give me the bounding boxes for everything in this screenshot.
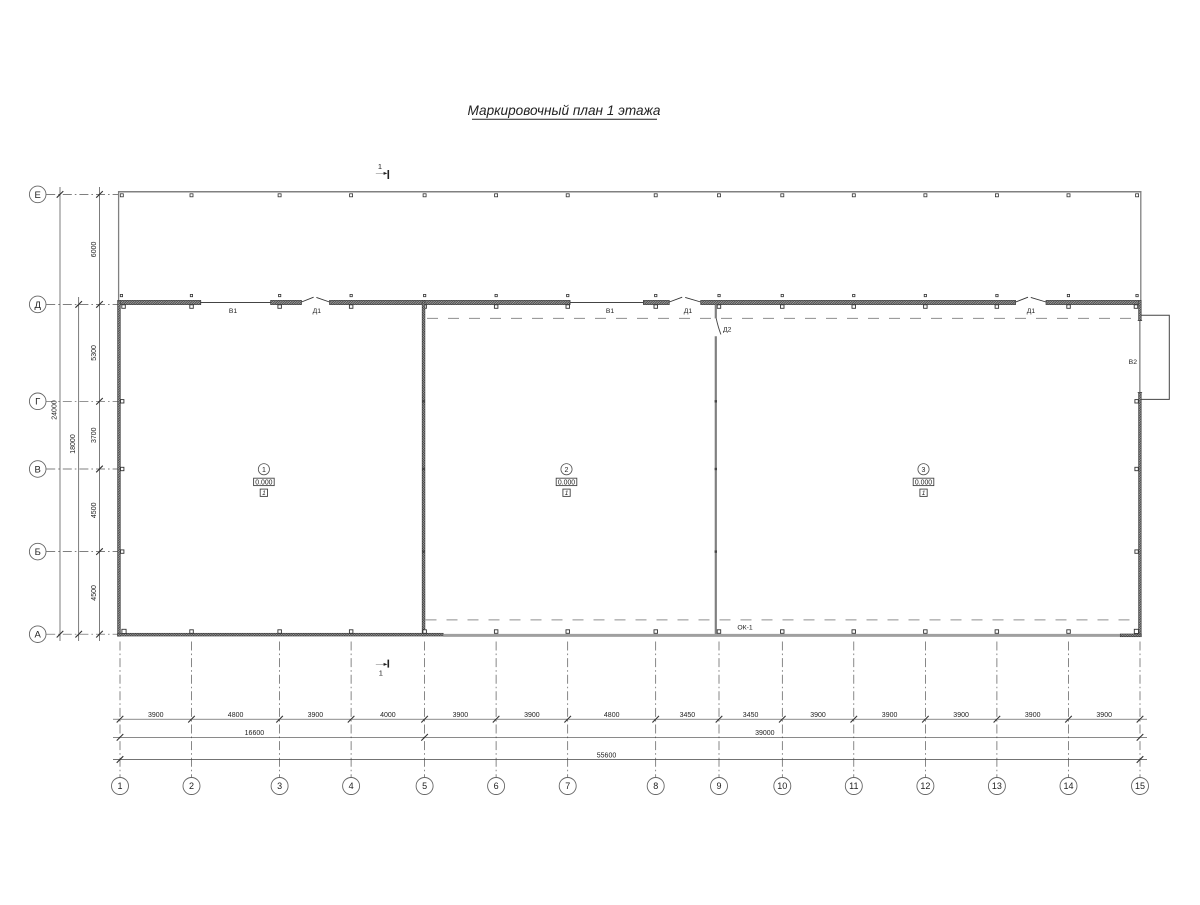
svg-text:13: 13	[992, 781, 1002, 791]
svg-text:В: В	[35, 464, 41, 475]
svg-text:6: 6	[494, 781, 499, 791]
svg-text:1: 1	[922, 490, 926, 497]
svg-text:3450: 3450	[743, 712, 759, 719]
svg-text:2: 2	[189, 781, 194, 791]
svg-text:ОК-1: ОК-1	[737, 625, 753, 632]
svg-text:0.000: 0.000	[915, 479, 932, 486]
svg-text:6000: 6000	[91, 242, 98, 258]
svg-text:10: 10	[777, 781, 787, 791]
svg-text:3: 3	[277, 781, 282, 791]
svg-text:Маркировочный план 1 этажа: Маркировочный план 1 этажа	[468, 103, 661, 118]
svg-text:12: 12	[920, 781, 930, 791]
svg-text:Д2: Д2	[723, 327, 732, 334]
svg-text:5: 5	[422, 781, 427, 791]
svg-text:Д1: Д1	[1027, 308, 1036, 315]
svg-text:3900: 3900	[453, 712, 469, 719]
svg-text:1: 1	[379, 669, 383, 678]
svg-text:3900: 3900	[524, 712, 540, 719]
svg-text:3900: 3900	[148, 712, 164, 719]
svg-text:2: 2	[565, 467, 569, 474]
svg-text:1: 1	[117, 781, 122, 791]
svg-text:Г: Г	[35, 397, 40, 408]
svg-text:4000: 4000	[380, 712, 396, 719]
svg-text:Е: Е	[35, 190, 41, 201]
svg-text:4800: 4800	[228, 712, 244, 719]
svg-text:3900: 3900	[882, 712, 898, 719]
svg-text:5300: 5300	[91, 345, 98, 361]
svg-text:А: А	[35, 630, 42, 641]
svg-text:1: 1	[262, 490, 266, 497]
svg-text:0.000: 0.000	[255, 479, 272, 486]
svg-text:3900: 3900	[308, 712, 324, 719]
svg-text:3700: 3700	[91, 427, 98, 443]
svg-text:9: 9	[716, 781, 721, 791]
svg-text:15: 15	[1135, 781, 1145, 791]
svg-text:3900: 3900	[953, 712, 969, 719]
svg-text:3900: 3900	[1025, 712, 1041, 719]
svg-text:0.000: 0.000	[558, 479, 575, 486]
svg-text:24000: 24000	[52, 400, 59, 420]
svg-text:3900: 3900	[810, 712, 826, 719]
svg-text:3450: 3450	[680, 712, 696, 719]
svg-text:Д: Д	[34, 300, 41, 311]
svg-text:Д1: Д1	[313, 308, 322, 315]
svg-text:1: 1	[565, 490, 569, 497]
svg-text:4500: 4500	[91, 585, 98, 601]
svg-text:Д1: Д1	[684, 308, 693, 315]
svg-text:4: 4	[349, 781, 354, 791]
svg-text:8: 8	[653, 781, 658, 791]
svg-text:Б: Б	[35, 547, 41, 558]
svg-text:14: 14	[1063, 781, 1073, 791]
svg-text:1: 1	[378, 162, 382, 171]
svg-text:18000: 18000	[70, 434, 77, 454]
svg-text:В1: В1	[229, 308, 238, 315]
svg-text:3900: 3900	[1096, 712, 1112, 719]
svg-text:1: 1	[262, 467, 266, 474]
svg-text:В1: В1	[606, 308, 615, 315]
svg-text:4500: 4500	[91, 502, 98, 518]
svg-text:3: 3	[922, 467, 926, 474]
svg-text:39000: 39000	[755, 730, 775, 737]
svg-text:55600: 55600	[597, 752, 617, 759]
svg-text:11: 11	[849, 781, 858, 791]
svg-text:7: 7	[565, 781, 570, 791]
svg-text:В2: В2	[1129, 359, 1138, 366]
svg-text:16600: 16600	[245, 730, 265, 737]
svg-text:4800: 4800	[604, 712, 620, 719]
